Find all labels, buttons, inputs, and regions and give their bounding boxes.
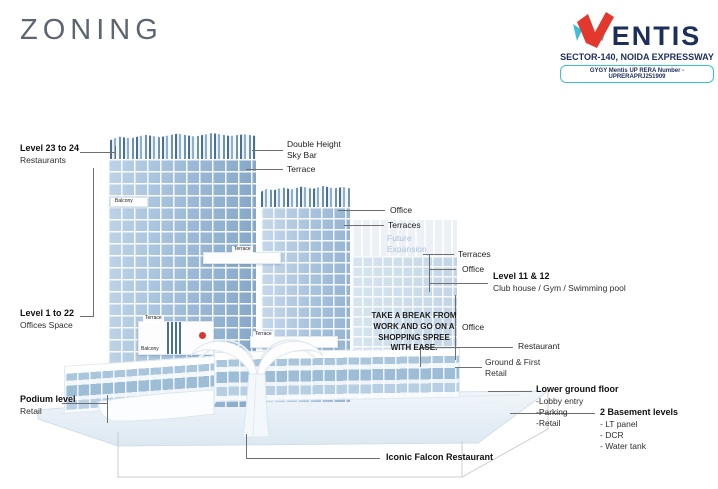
label-sub: Retail — [20, 406, 76, 417]
leader-office-right — [429, 269, 456, 270]
label-item: - Water tank — [600, 441, 678, 452]
leader-falcon-drop — [246, 434, 247, 459]
label-level-23-24: Level 23 to 24 Restaurants — [20, 143, 79, 166]
leader-level-1-22-span — [93, 168, 94, 317]
leader-level-23-24 — [80, 152, 116, 153]
label-office-mid: Office — [462, 322, 484, 332]
label-falcon: Iconic Falcon Restaurant — [386, 452, 493, 464]
label-office-top: Office — [390, 205, 412, 215]
leader-office-top — [338, 210, 385, 211]
label-title: Level 23 to 24 — [20, 143, 79, 155]
falcon-right-wing — [257, 341, 323, 378]
label-item: -Lobby entry — [536, 396, 619, 407]
label-sub: Offices Space — [20, 320, 74, 331]
leader-sky-bar — [252, 150, 283, 151]
terrace-tag: Terrace — [232, 246, 253, 254]
label-title: Iconic Falcon Restaurant — [386, 452, 493, 464]
label-basement: 2 Basement levels - LT panel - DCR - Wat… — [600, 407, 678, 452]
label-future-expansion: Future Expansion — [387, 233, 443, 254]
label-title: Level 1 to 22 — [20, 308, 74, 320]
label-title: Lower ground floor — [536, 384, 619, 396]
leader-ground-first — [455, 367, 482, 368]
zoning-page: ZONING ENTIS SECTOR-140, NOIDA EXPRESSWA… — [0, 0, 718, 489]
leader-falcon — [246, 458, 380, 459]
label-office-right: Office — [462, 264, 484, 274]
label-sub: Club house / Gym / Swimming pool — [493, 283, 626, 294]
leader-level-23-24-tick — [115, 146, 116, 159]
leader-terraces-top — [344, 225, 384, 226]
label-item: - LT panel — [600, 419, 678, 430]
leader-level-11-12 — [429, 283, 488, 284]
terrace-tag: Terrace — [253, 331, 274, 339]
falcon-left-wing — [191, 341, 257, 378]
label-item: - DCR — [600, 430, 678, 441]
facade-red-dot — [199, 332, 206, 339]
label-ground-first: Ground & First Retail — [485, 357, 540, 379]
label-terraces-top: Terraces — [388, 220, 421, 230]
label-title: Level 11 & 12 — [493, 271, 626, 283]
leader-right-bracket — [429, 254, 430, 292]
label-terraces-right: Terraces — [458, 249, 491, 259]
label-level-1-22: Level 1 to 22 Offices Space — [20, 308, 74, 331]
label-title: Podium level — [20, 394, 76, 406]
label-shopping-note: TAKE A BREAK FROM WORK AND GO ON A SHOPP… — [368, 311, 460, 354]
label-terrace-top: Terrace — [287, 164, 315, 174]
leader-terrace-top — [246, 169, 283, 170]
leader-podium-tick — [107, 395, 108, 423]
label-level-11-12: Level 11 & 12 Club house / Gym / Swimmin… — [493, 271, 626, 294]
podium-front-curve — [98, 390, 214, 421]
label-podium-level: Podium level Retail — [20, 394, 76, 417]
label-sub: Retail — [485, 368, 540, 379]
label-sky-bar: Double Height Sky Bar — [287, 139, 349, 160]
leader-level-1-22 — [80, 316, 94, 317]
terrace-tag: Terrace — [143, 315, 164, 323]
label-title: 2 Basement levels — [600, 407, 678, 419]
balcony-tag: Balcony — [139, 346, 161, 354]
leader-lower-ground — [488, 391, 532, 392]
balcony-tag: Balcony — [113, 198, 135, 206]
label-restaurant: Restaurant — [518, 341, 560, 351]
label-sub: Restaurants — [20, 155, 79, 166]
label-title: Ground & First — [485, 357, 540, 368]
